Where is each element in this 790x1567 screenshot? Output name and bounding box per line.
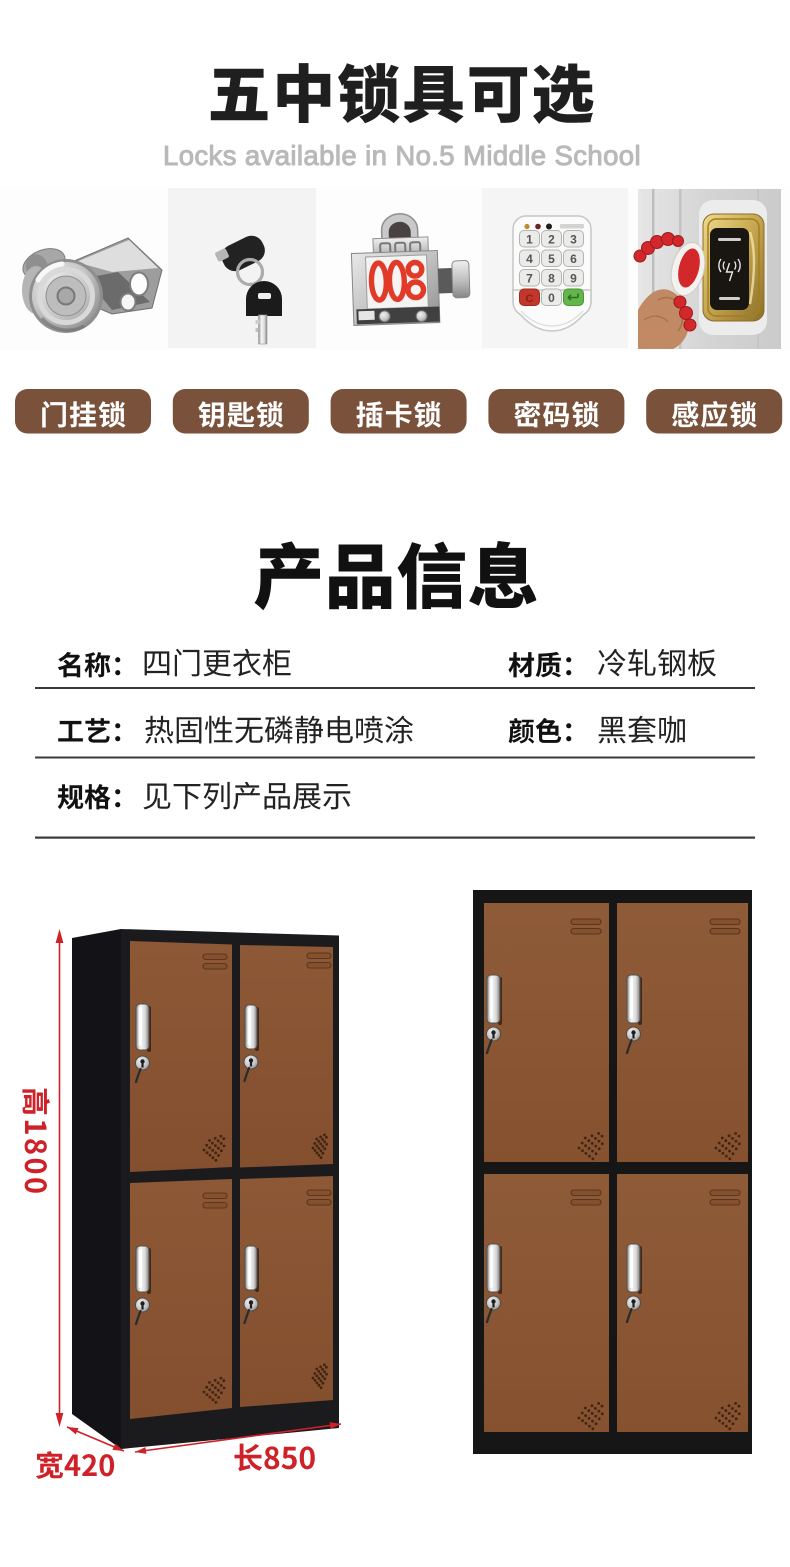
svg-text:6: 6 (570, 252, 577, 266)
svg-text:0: 0 (548, 291, 555, 305)
svg-text:5: 5 (548, 252, 555, 266)
svg-text:2: 2 (548, 233, 555, 247)
svg-text:9: 9 (570, 272, 577, 286)
svg-text:8: 8 (548, 272, 555, 286)
svg-text:Locks available in No.5 Middle: Locks available in No.5 Middle School (163, 140, 641, 171)
svg-text:4: 4 (526, 252, 533, 266)
svg-text:3: 3 (570, 233, 577, 247)
svg-text:7: 7 (526, 272, 533, 286)
svg-text:1: 1 (526, 233, 533, 247)
svg-text:C: C (526, 293, 534, 305)
